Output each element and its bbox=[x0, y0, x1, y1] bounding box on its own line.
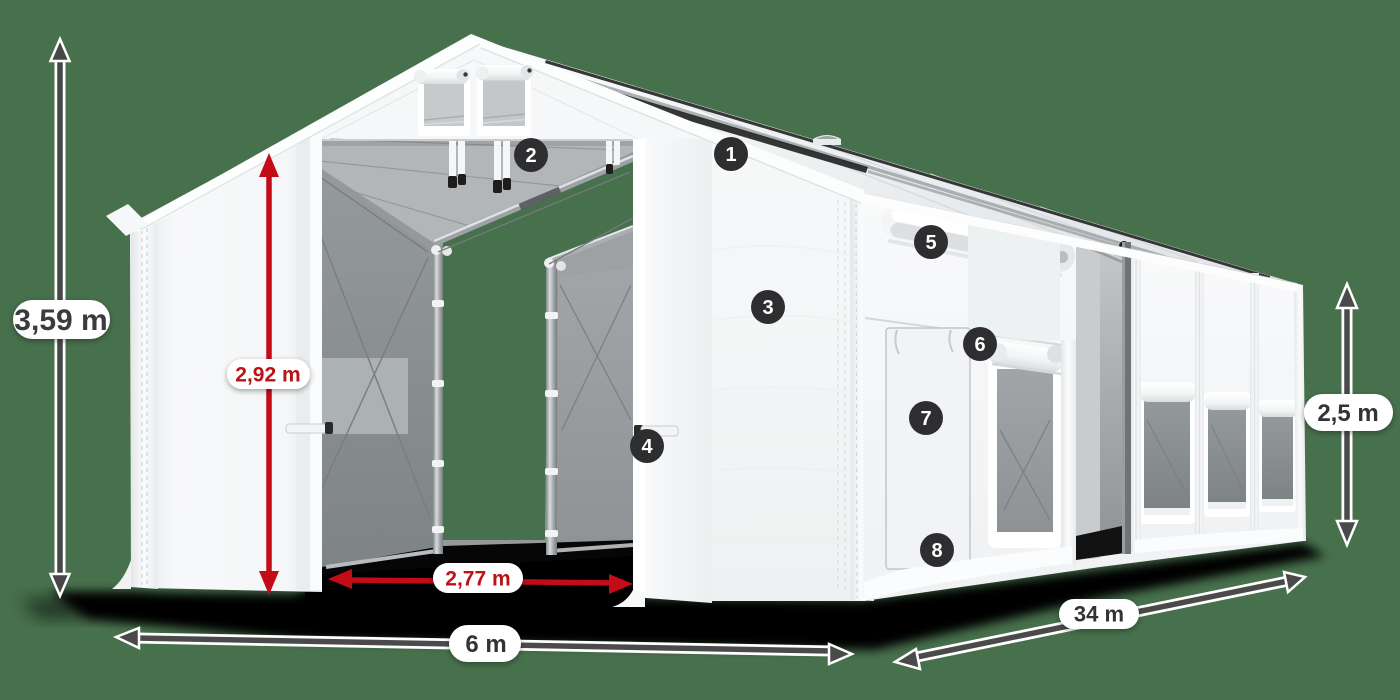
svg-text:5: 5 bbox=[925, 232, 936, 254]
svg-text:2,77 m: 2,77 m bbox=[445, 568, 510, 591]
svg-text:2: 2 bbox=[525, 145, 536, 167]
svg-text:4: 4 bbox=[641, 436, 653, 458]
svg-text:3,59 m: 3,59 m bbox=[14, 304, 107, 337]
svg-text:8: 8 bbox=[931, 540, 942, 562]
svg-text:34 m: 34 m bbox=[1074, 602, 1124, 627]
svg-text:6 m: 6 m bbox=[465, 631, 506, 658]
svg-text:6: 6 bbox=[974, 334, 985, 356]
svg-text:2,5 m: 2,5 m bbox=[1317, 400, 1378, 427]
svg-text:7: 7 bbox=[920, 408, 931, 430]
svg-text:1: 1 bbox=[725, 144, 736, 166]
svg-text:2,92 m: 2,92 m bbox=[235, 364, 300, 387]
svg-text:3: 3 bbox=[762, 297, 773, 319]
